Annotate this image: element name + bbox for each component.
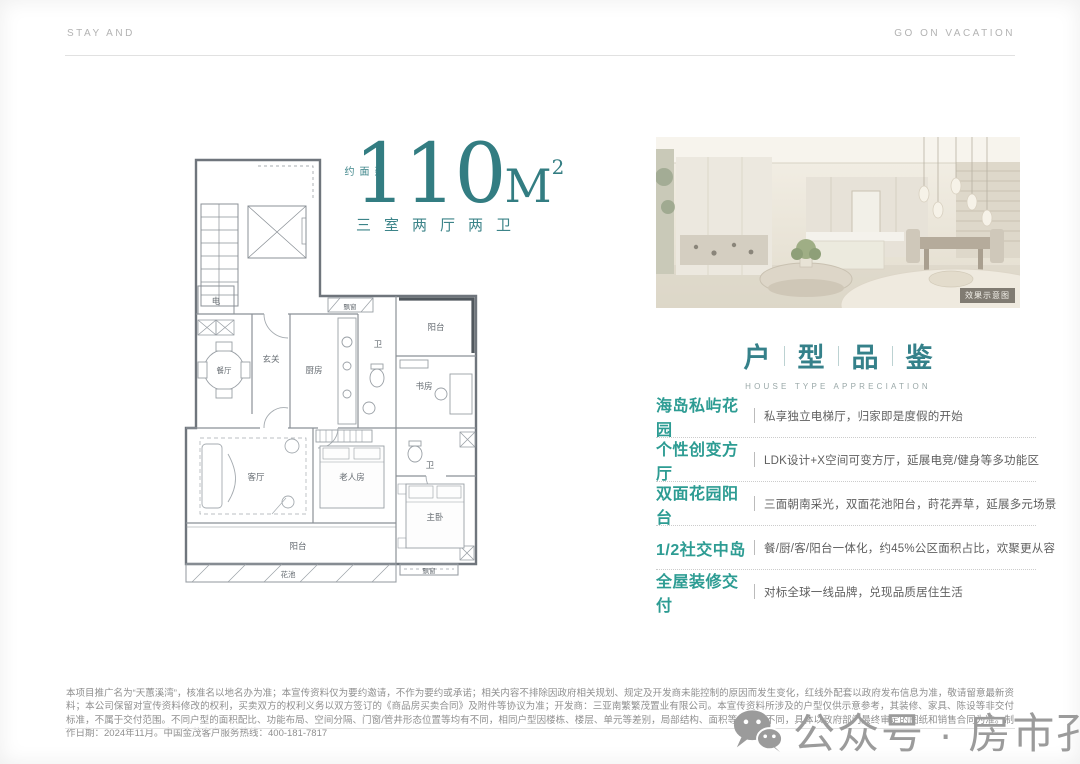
- interior-rendering-art: [656, 137, 1020, 308]
- feature-description: LDK设计+X空间可变方厅，延展电竞/健身等多功能区: [764, 452, 1039, 468]
- feature-heading: 个性创变方厅: [656, 436, 753, 484]
- feature-divider: [754, 540, 755, 555]
- section-title-char: 户: [744, 336, 771, 375]
- room-label-study: 书房: [415, 381, 432, 391]
- brochure-page: STAY AND GO ON VACATION: [0, 0, 1080, 764]
- layout-subtitle: 三室两厅两卫: [356, 214, 524, 235]
- room-label-baywindow-bottom: 飘窗: [423, 566, 436, 575]
- feature-heading: 双面花园阳台: [656, 480, 753, 528]
- feature-divider: [754, 496, 755, 511]
- area-value: 110M2: [354, 140, 564, 213]
- header-rule: [65, 55, 1015, 56]
- feature-heading: 全屋装修交付: [656, 568, 753, 616]
- watermark-text: 公众号 · 房市孔明: [793, 700, 1080, 761]
- section-title: 户 型 品 鉴: [744, 336, 933, 375]
- room-label-utility: 电: [212, 296, 221, 306]
- area-superscript: 2: [552, 155, 565, 179]
- room-label-dining: 餐厅: [217, 366, 232, 375]
- section-title-char: 鉴: [906, 336, 933, 375]
- room-label-balcony-bottom: 阳台: [289, 541, 306, 551]
- room-label-balcony-top: 阳台: [427, 322, 444, 332]
- feature-divider: [754, 408, 755, 423]
- header-right-text: GO ON VACATION: [894, 28, 1015, 39]
- room-label-bath2: 卫: [426, 460, 435, 470]
- feature-description: 三面朝南采光，双面花池阳台，莳花弄草，延展多元场景: [764, 496, 1057, 512]
- feature-divider: [754, 452, 755, 467]
- section-title-char: 品: [852, 336, 879, 375]
- section-title-char: 型: [798, 336, 825, 375]
- feature-row-garden: 海岛私屿花园 私享独立电梯厅，归家即是度假的开始: [656, 394, 1036, 438]
- title-separator: [838, 346, 839, 366]
- feature-heading: 1/2社交中岛: [656, 536, 753, 560]
- photo-caption: 效果示意图: [960, 288, 1015, 303]
- title-separator: [892, 346, 893, 366]
- area-number: 110: [354, 127, 505, 222]
- room-label-elder-room: 老人房: [339, 472, 365, 482]
- watermark: 公众号 · 房市孔明: [733, 700, 1080, 761]
- feature-description: 餐/厨/客/阳台一体化，约45%公区面积占比，欢聚更从容: [764, 540, 1055, 556]
- title-separator: [784, 346, 785, 366]
- section-heading: 户 型 品 鉴 HOUSE TYPE APPRECIATION: [656, 336, 1020, 391]
- room-label-baywindow-top: 飘窗: [344, 302, 357, 311]
- room-label-flowerbed: 花池: [281, 569, 296, 579]
- area-unit: M: [505, 159, 552, 213]
- room-label-master-bedroom: 主卧: [426, 512, 444, 522]
- room-label-kitchen: 厨房: [305, 365, 322, 375]
- feature-description: 对标全球一线品牌，兑现品质居住生活: [764, 584, 963, 600]
- feature-row-decoration: 全屋装修交付 对标全球一线品牌，兑现品质居住生活: [656, 570, 1036, 613]
- feature-heading: 海岛私屿花园: [656, 392, 753, 440]
- room-label-bath1: 卫: [374, 339, 383, 349]
- section-subtitle: HOUSE TYPE APPRECIATION: [656, 382, 1020, 391]
- feature-row-balcony: 双面花园阳台 三面朝南采光，双面花池阳台，莳花弄草，延展多元场景: [656, 482, 1036, 526]
- interior-rendering-photo: 效果示意图: [656, 137, 1020, 308]
- feature-description: 私享独立电梯厅，归家即是度假的开始: [764, 408, 963, 424]
- feature-row-flexhall: 个性创变方厅 LDK设计+X空间可变方厅，延展电竞/健身等多功能区: [656, 438, 1036, 482]
- feature-list: 海岛私屿花园 私享独立电梯厅，归家即是度假的开始 个性创变方厅 LDK设计+X空…: [656, 394, 1036, 613]
- room-label-entry: 玄关: [262, 354, 280, 364]
- feature-divider: [754, 584, 755, 599]
- room-label-living: 客厅: [247, 472, 265, 482]
- wechat-icon: [733, 708, 783, 754]
- feature-row-island: 1/2社交中岛 餐/厨/客/阳台一体化，约45%公区面积占比，欢聚更从容: [656, 526, 1036, 570]
- header-left-text: STAY AND: [67, 28, 135, 39]
